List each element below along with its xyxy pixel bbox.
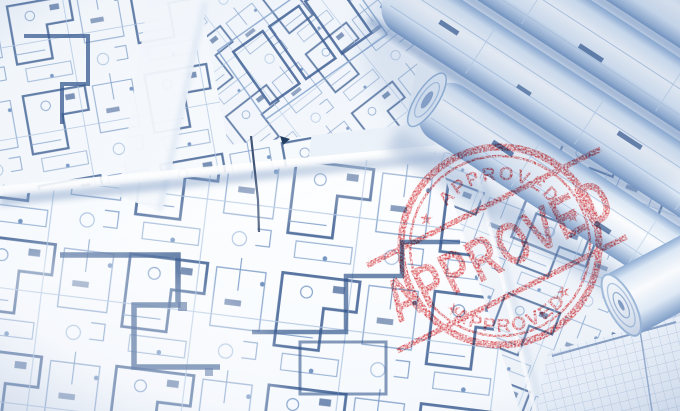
blueprint-approved-photo: APPROVED APPROVED APPROVED ★ ★ ★ ★ (0, 0, 680, 411)
blueprint-scene: APPROVED APPROVED APPROVED ★ ★ ★ ★ (0, 0, 680, 411)
